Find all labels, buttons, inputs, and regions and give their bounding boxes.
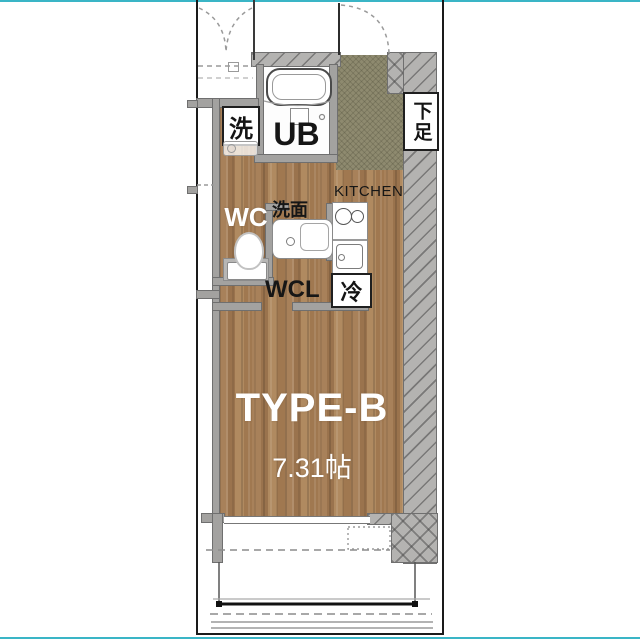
accent-line-top: [0, 0, 640, 2]
toilet-bowl-icon: [234, 232, 264, 270]
ac-unit-outline: [348, 527, 390, 549]
stove-burner-large-icon: [335, 208, 352, 225]
exterior-tick-upper: [188, 101, 197, 107]
room-area-label: 7.31帖: [212, 446, 412, 485]
floor-plan: 洗 UB 下足 WC 洗面 KITCHEN 冷: [0, 0, 640, 639]
entrance-door-leaf: [338, 3, 340, 55]
stove-burner-small-icon: [351, 210, 364, 223]
shoe-cabinet-box: 下足: [403, 92, 439, 151]
wc-label: WC: [219, 202, 273, 233]
kitchen-sink-icon: [336, 244, 363, 269]
plan-border-left: [196, 0, 198, 635]
wall-bottom-right-block: [392, 514, 437, 562]
corridor-box: [228, 62, 239, 72]
laundry-label: 洗: [229, 109, 253, 144]
unit-bath-label: UB: [263, 116, 330, 153]
wall-window-stub-v: [213, 514, 222, 562]
wall-left-tick: [197, 291, 219, 298]
plan-border-right: [442, 0, 444, 635]
door-swing-arc-entrance: [341, 5, 389, 53]
kitchen-counter: [332, 202, 368, 275]
door-swing-arc-left: [199, 8, 226, 52]
wall-wcl-bottom-left: [213, 303, 261, 310]
corridor-wall-line: [253, 0, 255, 60]
balcony-window: [224, 516, 370, 524]
washing-machine-pan-icon: [223, 141, 258, 156]
room-type-title: TYPE-B: [212, 386, 412, 431]
walk-in-closet-label: WCL: [265, 276, 320, 304]
laundry-box: 洗: [222, 106, 260, 146]
bathtub-icon: [266, 68, 332, 106]
kitchen-label: KITCHEN: [334, 183, 403, 200]
shoe-cabinet-label: 下足: [408, 101, 435, 143]
plan-border-bottom: [196, 633, 444, 635]
refrigerator-box: 冷: [331, 273, 372, 308]
exterior-tick-lower: [188, 187, 197, 193]
wall-bath-bottom: [255, 155, 337, 162]
washstand-icon: [272, 219, 333, 259]
wall-top-bath: [252, 53, 340, 66]
refrigerator-label: 冷: [340, 275, 362, 307]
